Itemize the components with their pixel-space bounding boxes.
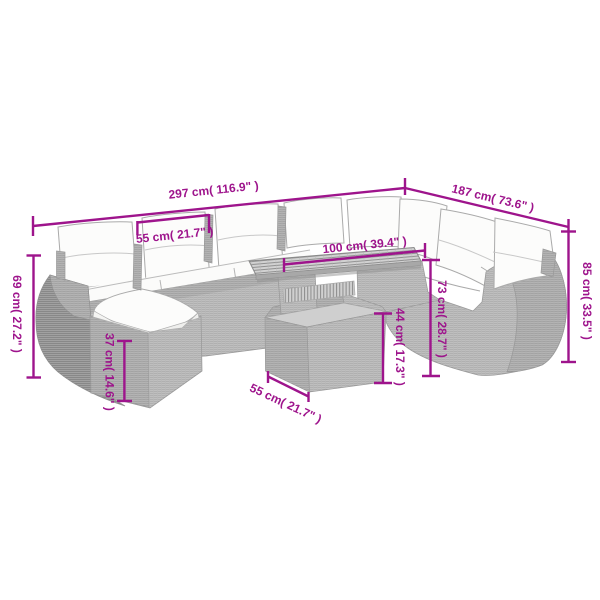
svg-text:37 cm( 14.6" ): 37 cm( 14.6" ) bbox=[103, 333, 117, 411]
svg-text:44 cm( 17.3" ): 44 cm( 17.3" ) bbox=[393, 308, 407, 386]
svg-text:73 cm( 28.7" ): 73 cm( 28.7" ) bbox=[435, 280, 449, 358]
svg-text:69 cm( 27.2" ): 69 cm( 27.2" ) bbox=[10, 275, 24, 353]
svg-text:85 cm( 33.5" ): 85 cm( 33.5" ) bbox=[580, 262, 594, 340]
